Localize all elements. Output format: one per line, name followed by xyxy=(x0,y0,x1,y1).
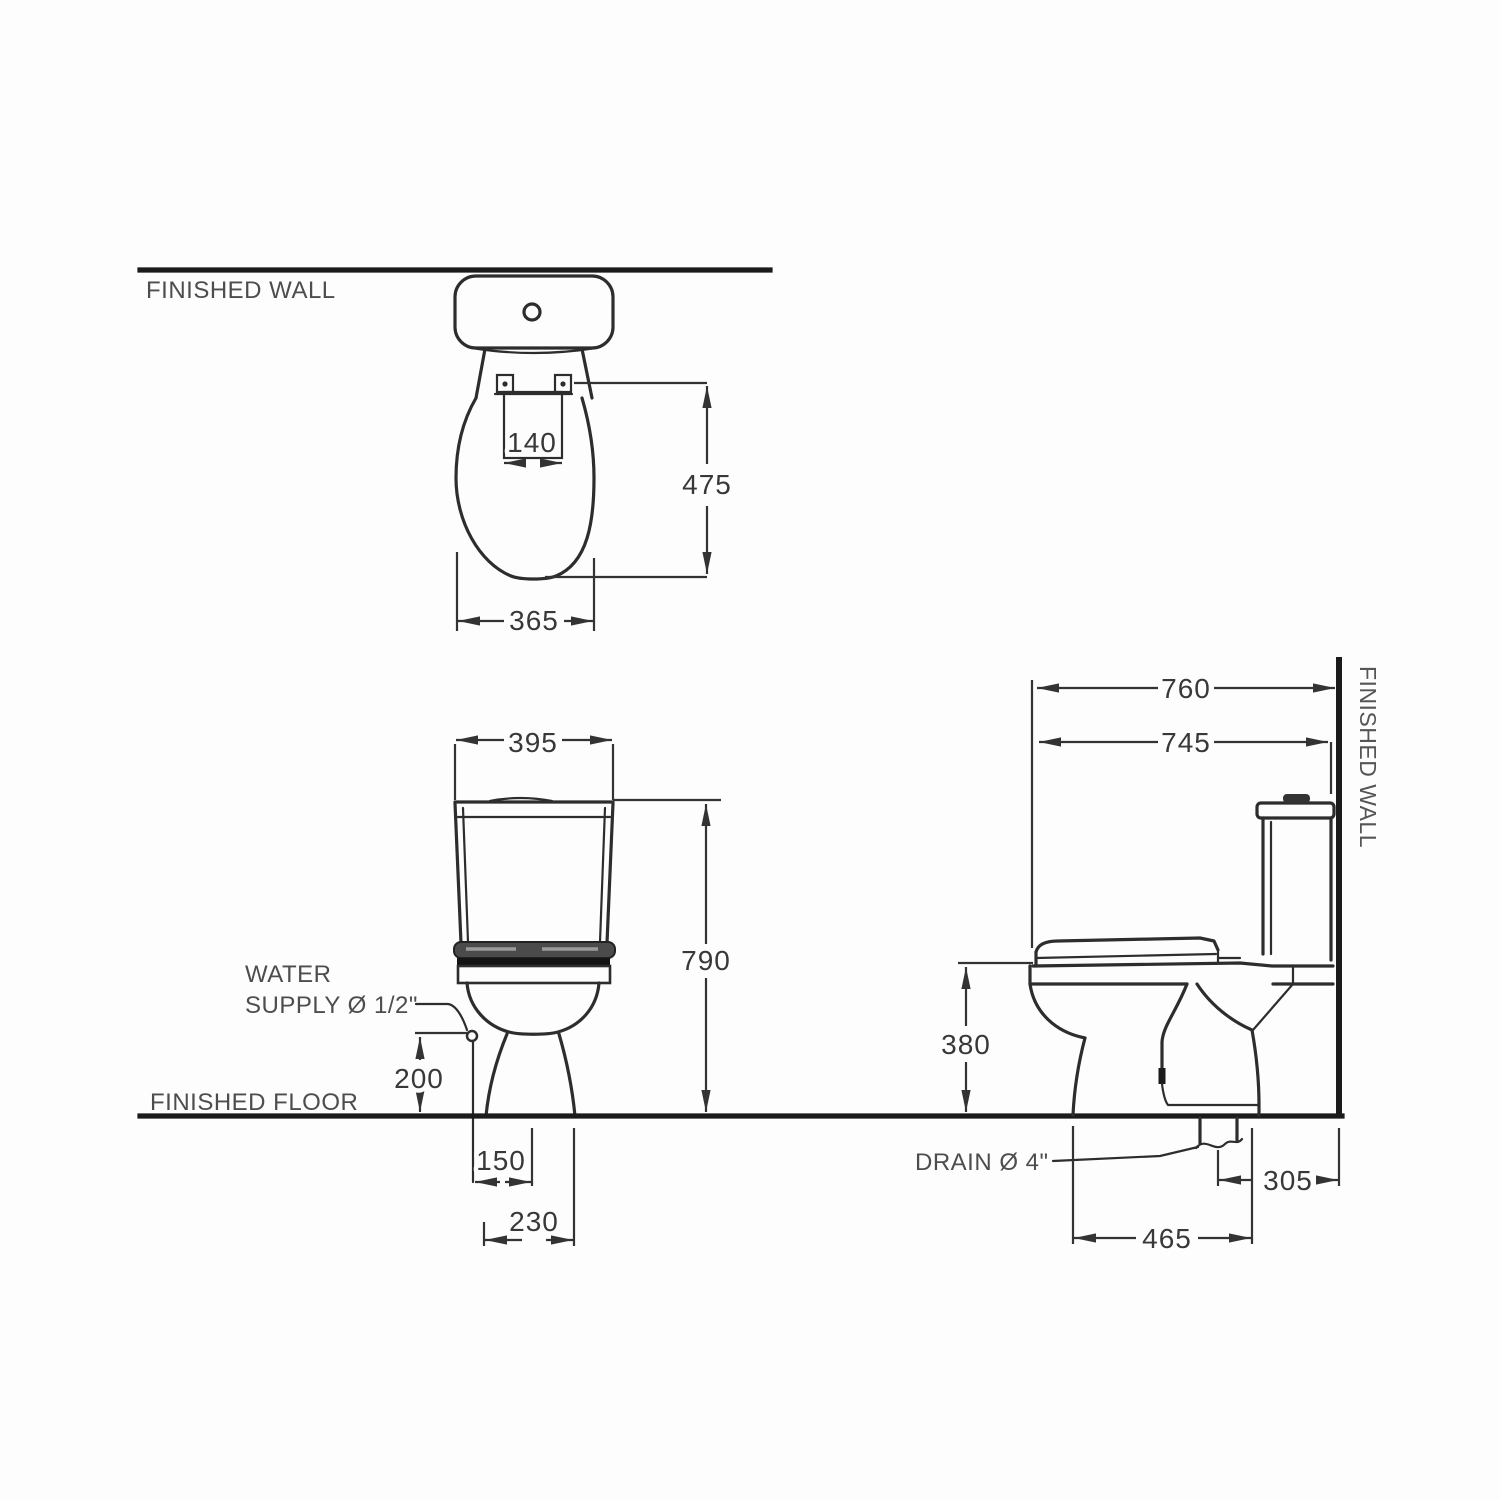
pedestal-side-back xyxy=(1252,1030,1259,1115)
tank-lid-side xyxy=(1257,803,1334,818)
water-supply-label-line1: WATER xyxy=(245,961,332,988)
finished-wall-label: FINISHED WALL xyxy=(146,277,336,304)
tank-front-left-inner xyxy=(463,808,468,942)
dim-140: 140 xyxy=(504,427,562,463)
technical-drawing-page: FINISHED WALL 140 475 xyxy=(0,0,1500,1500)
neck-right-edge xyxy=(582,349,592,398)
seat-hinge-side xyxy=(1218,950,1240,962)
dim-475-value: 475 xyxy=(682,469,732,500)
water-supply-label-line2: SUPPLY Ø 1/2" xyxy=(245,992,418,1019)
pedestal-right-leg xyxy=(559,1034,575,1116)
drain-pipe-break-line xyxy=(1196,1139,1242,1148)
dim-200: 200 xyxy=(394,1033,468,1112)
dim-230-value: 230 xyxy=(509,1206,559,1237)
dim-200-value: 200 xyxy=(394,1063,444,1094)
dim-760: 760 xyxy=(1032,673,1335,948)
rim-top-side xyxy=(1033,963,1333,966)
dim-395: 395 xyxy=(455,727,613,800)
hinge-bolt-left xyxy=(502,381,507,386)
drain-leader xyxy=(1053,1147,1198,1161)
dim-305-value: 305 xyxy=(1263,1165,1313,1196)
bowl-rim-front xyxy=(458,966,610,983)
hinge-bolt-right xyxy=(560,381,565,386)
top-view: FINISHED WALL 140 475 xyxy=(140,270,770,636)
dim-380-value: 380 xyxy=(941,1029,991,1060)
tank-front-right-inner xyxy=(600,808,605,942)
dim-365-value: 365 xyxy=(509,605,559,636)
dim-140-value: 140 xyxy=(507,427,557,458)
plinth-line xyxy=(1162,1084,1259,1105)
dim-745-value: 745 xyxy=(1161,727,1211,758)
finished-floor-label: FINISHED FLOOR xyxy=(150,1089,358,1116)
tank-front-right-outer xyxy=(607,803,613,943)
drain-pipe xyxy=(1200,1118,1237,1143)
front-view: 395 WATER SUPPLY Ø 1/2" 200 xyxy=(245,727,731,1246)
dim-465-value: 465 xyxy=(1142,1223,1192,1254)
finished-wall-label-right: FINISHED WALL xyxy=(1355,666,1381,848)
trap-curve-front xyxy=(1162,984,1187,1068)
dim-395-value: 395 xyxy=(508,727,558,758)
seat-lid-mid-side xyxy=(1036,954,1216,958)
flush-button-icon xyxy=(524,304,540,320)
bowl-top-outline xyxy=(456,398,594,579)
drain-label: DRAIN Ø 4" xyxy=(915,1149,1049,1176)
dim-745: 745 xyxy=(1039,727,1331,794)
tank-front-left-outer xyxy=(455,803,461,943)
tank-button-side xyxy=(1283,794,1310,803)
trap-curve-back xyxy=(1197,984,1252,1030)
dim-790-value: 790 xyxy=(681,945,731,976)
water-supply-leader xyxy=(416,1004,467,1030)
toilet-dimension-drawing: FINISHED WALL 140 475 xyxy=(0,0,1500,1500)
seat-lid-top-side xyxy=(1036,938,1218,952)
side-view: FINISHED WALL 760 745 xyxy=(915,660,1381,1254)
bowl-front-outline xyxy=(467,983,599,1034)
dim-475: 475 xyxy=(545,383,732,577)
dim-790: 790 xyxy=(613,800,731,1112)
dim-150: 150 xyxy=(475,1128,532,1186)
pedestal-left-leg xyxy=(486,1034,507,1116)
dim-150-value: 150 xyxy=(476,1145,526,1176)
tank-top-outline xyxy=(455,276,613,348)
pedestal-side-front xyxy=(1073,1038,1085,1115)
water-supply-point xyxy=(467,1031,477,1041)
neck-left-edge xyxy=(476,349,485,398)
back-cowl-edge xyxy=(1253,966,1293,1030)
dim-380: 380 xyxy=(941,963,1033,1112)
bowl-side-front xyxy=(1030,984,1085,1038)
dim-760-value: 760 xyxy=(1161,673,1211,704)
